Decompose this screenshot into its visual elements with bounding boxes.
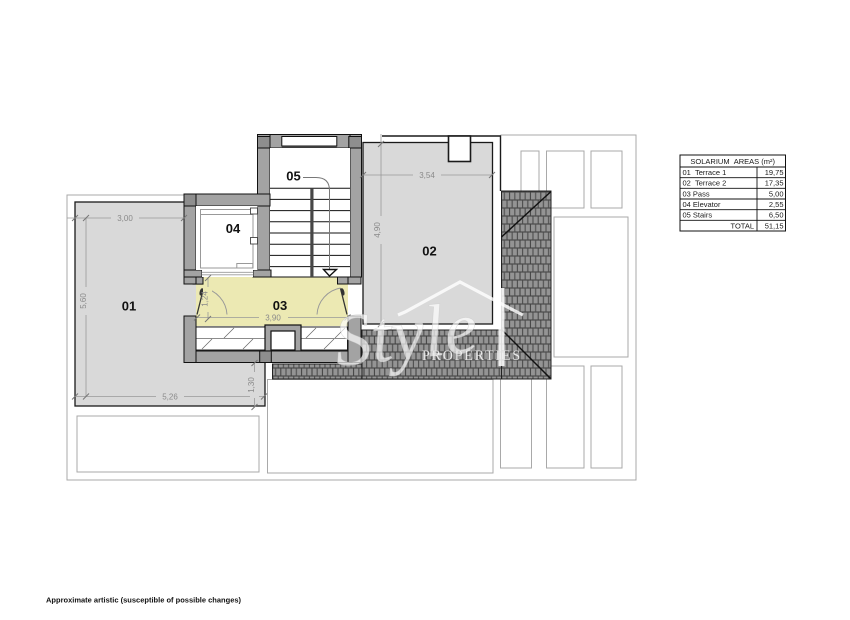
svg-text:PROPERTIES: PROPERTIES bbox=[422, 348, 522, 364]
svg-text:05: 05 bbox=[286, 169, 300, 184]
svg-text:1,30: 1,30 bbox=[247, 377, 256, 393]
svg-text:02 Terrace 2: 02 Terrace 2 bbox=[683, 179, 727, 188]
svg-text:3,54: 3,54 bbox=[419, 171, 435, 180]
svg-text:Approximate artistic (suscepti: Approximate artistic (susceptible of pos… bbox=[46, 596, 242, 605]
svg-text:03 Pass: 03 Pass bbox=[683, 189, 710, 198]
svg-text:5,00: 5,00 bbox=[769, 189, 784, 198]
svg-text:02: 02 bbox=[422, 244, 436, 259]
svg-text:17,35: 17,35 bbox=[765, 179, 784, 188]
svg-text:SOLARIUM AREAS (m²): SOLARIUM AREAS (m²) bbox=[690, 157, 775, 166]
svg-text:Style: Style bbox=[330, 286, 481, 382]
svg-text:1,24: 1,24 bbox=[201, 291, 210, 307]
svg-text:5,26: 5,26 bbox=[162, 393, 178, 402]
svg-text:03: 03 bbox=[273, 298, 287, 313]
svg-text:4,90: 4,90 bbox=[373, 222, 382, 238]
svg-text:5,60: 5,60 bbox=[79, 293, 88, 309]
svg-text:51,15: 51,15 bbox=[765, 221, 784, 230]
svg-text:3,90: 3,90 bbox=[265, 314, 281, 323]
svg-text:3,00: 3,00 bbox=[117, 214, 133, 223]
svg-text:2,55: 2,55 bbox=[769, 200, 784, 209]
svg-text:05 Stairs: 05 Stairs bbox=[683, 211, 713, 220]
svg-text:01 Terrace 1: 01 Terrace 1 bbox=[683, 168, 727, 177]
svg-text:TOTAL: TOTAL bbox=[731, 221, 754, 230]
svg-text:04 Elevator: 04 Elevator bbox=[683, 200, 721, 209]
svg-text:6,50: 6,50 bbox=[769, 211, 784, 220]
svg-text:04: 04 bbox=[226, 221, 241, 236]
svg-text:01: 01 bbox=[122, 299, 136, 314]
svg-text:19,75: 19,75 bbox=[765, 168, 784, 177]
